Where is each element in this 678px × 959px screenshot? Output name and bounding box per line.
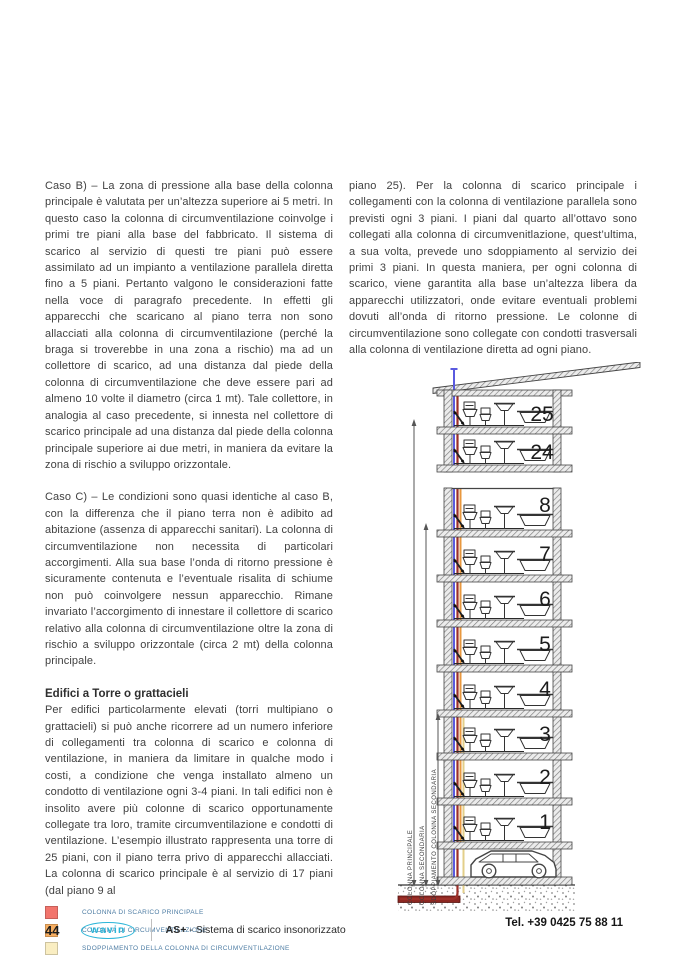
- footer-subtitle: - Sistema di scarico insonorizzato: [186, 924, 345, 936]
- label-colonna-principale: COLONNA PRINCIPALE: [408, 830, 414, 905]
- floor-number: 1: [539, 811, 551, 834]
- phone-number: Tel. +39 0425 75 88 11: [505, 917, 623, 929]
- paragraph-piano-25: piano 25). Per la colonna di scarico pri…: [349, 178, 637, 358]
- footer-divider: [151, 919, 152, 941]
- floor-number: 5: [539, 633, 551, 656]
- floor-number: 2: [539, 766, 551, 789]
- floor-number: 7: [539, 543, 551, 566]
- floor-number: 3: [539, 723, 551, 746]
- paragraph-torre: Per edifici particolarmente elevati (tor…: [45, 702, 333, 899]
- label-colonna-secondaria: COLONNA SECONDARIA: [420, 825, 426, 905]
- label-sdoppiamento-colonna-secondaria: SDOPPIAMENTO COLONNA SECONDARIA: [432, 769, 438, 905]
- car: [471, 851, 556, 878]
- footer: 44 wavin AS+ - Sistema di scarico insono…: [45, 918, 346, 942]
- left-column: Caso B) – La zona di pressione alla base…: [45, 178, 333, 959]
- roof: [433, 362, 640, 394]
- legend-swatch-sdoppiamento: [45, 942, 58, 955]
- legend-label: COLONNA DI SCARICO PRINCIPALE: [82, 909, 204, 916]
- footer-title: AS+ - Sistema di scarico insonorizzato: [166, 924, 346, 936]
- page-number: 44: [45, 923, 59, 938]
- floor-number: 4: [539, 678, 551, 701]
- floor-number: 25: [530, 403, 553, 426]
- floor-number: 6: [539, 588, 551, 611]
- wavin-logo: wavin: [81, 922, 134, 939]
- section-heading: Edifici a Torre o grattacieli: [45, 686, 333, 702]
- legend-label: SDOPPIAMENTO DELLA COLONNA DI CIRCUMVENT…: [82, 945, 290, 952]
- building-section-diagram: 25 24: [352, 362, 652, 922]
- legend-item: SDOPPIAMENTO DELLA COLONNA DI CIRCUMVENT…: [45, 942, 333, 955]
- document-page: Caso B) – La zona di pressione alla base…: [0, 0, 678, 959]
- paragraph-caso-b: Caso B) – La zona di pressione alla base…: [45, 178, 333, 473]
- paragraph-caso-c: Caso C) – Le condizioni sono quasi ident…: [45, 489, 333, 669]
- floor-number: 24: [530, 441, 554, 464]
- right-column: piano 25). Per la colonna di scarico pri…: [349, 178, 637, 374]
- floor-number: 8: [539, 494, 551, 517]
- footer-product: AS+: [166, 924, 187, 936]
